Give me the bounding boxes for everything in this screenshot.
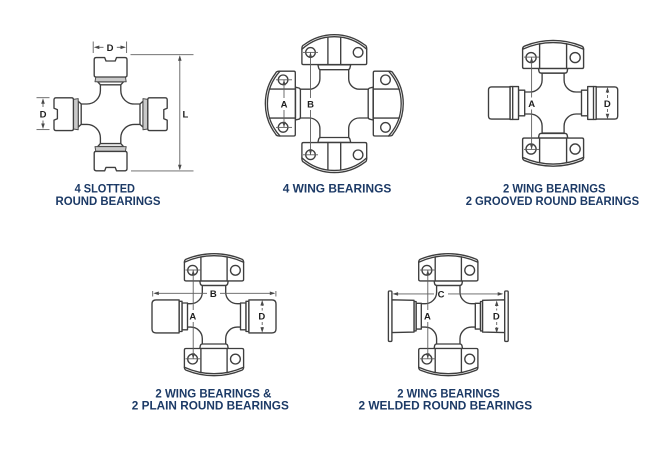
svg-text:L: L [183, 109, 189, 120]
svg-text:A: A [424, 312, 431, 323]
svg-text:ROUND BEARINGS: ROUND BEARINGS [56, 194, 161, 208]
svg-text:B: B [210, 289, 217, 300]
svg-text:D: D [493, 312, 500, 323]
svg-text:2 GROOVED ROUND BEARINGS: 2 GROOVED ROUND BEARINGS [466, 194, 639, 208]
svg-text:2 PLAIN ROUND BEARINGS: 2 PLAIN ROUND BEARINGS [132, 399, 289, 413]
svg-text:C: C [438, 289, 445, 300]
svg-text:A: A [189, 312, 196, 323]
svg-text:4 WING BEARINGS: 4 WING BEARINGS [283, 182, 392, 196]
svg-text:B: B [307, 99, 314, 110]
svg-text:D: D [604, 99, 611, 110]
svg-text:D: D [40, 109, 47, 120]
svg-text:A: A [281, 99, 288, 110]
svg-text:D: D [107, 43, 114, 54]
svg-text:2 WELDED ROUND BEARINGS: 2 WELDED ROUND BEARINGS [358, 399, 532, 413]
svg-text:D: D [258, 312, 265, 323]
svg-text:A: A [528, 99, 535, 110]
